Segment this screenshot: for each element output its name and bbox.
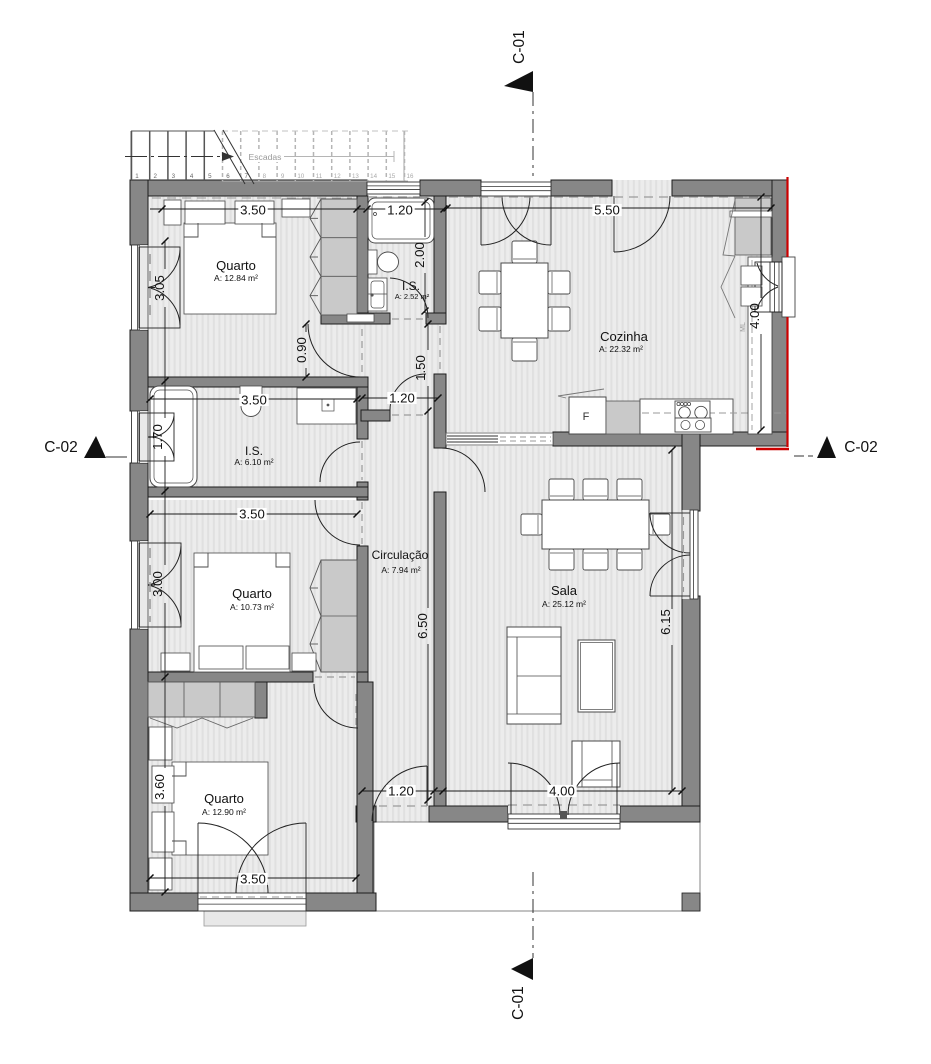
svg-text:4.00: 4.00 — [747, 303, 762, 329]
svg-text:13: 13 — [352, 173, 359, 180]
svg-text:16: 16 — [407, 173, 414, 180]
svg-text:4: 4 — [190, 173, 194, 180]
svg-text:A: 10.73 m²: A: 10.73 m² — [230, 602, 274, 612]
svg-text:10: 10 — [297, 173, 304, 180]
svg-text:Quarto: Quarto — [216, 258, 256, 273]
svg-text:3.00: 3.00 — [150, 571, 165, 597]
svg-text:3.50: 3.50 — [239, 506, 265, 521]
svg-text:Quarto: Quarto — [204, 791, 244, 806]
svg-text:A: 12.90 m²: A: 12.90 m² — [202, 807, 246, 817]
svg-text:15: 15 — [388, 173, 395, 180]
svg-text:14: 14 — [370, 173, 377, 180]
svg-text:Sala: Sala — [551, 583, 578, 598]
svg-text:3.05: 3.05 — [152, 275, 167, 301]
svg-text:I.S.: I.S. — [245, 444, 263, 458]
svg-text:8: 8 — [263, 173, 267, 180]
svg-text:A: 6.10 m²: A: 6.10 m² — [234, 457, 273, 467]
svg-text:1.20: 1.20 — [388, 783, 414, 798]
svg-text:Quarto: Quarto — [232, 586, 272, 601]
svg-text:0.90: 0.90 — [294, 337, 309, 363]
svg-text:A: 7.94 m²: A: 7.94 m² — [381, 565, 420, 575]
svg-text:11: 11 — [316, 173, 323, 180]
svg-text:A: 2.52 m²: A: 2.52 m² — [395, 292, 430, 301]
svg-text:6.15: 6.15 — [658, 609, 673, 635]
svg-text:5: 5 — [208, 173, 212, 180]
svg-text:3.50: 3.50 — [241, 392, 267, 407]
svg-text:3.50: 3.50 — [240, 202, 266, 217]
svg-text:6: 6 — [226, 173, 230, 180]
svg-text:I.S.: I.S. — [402, 279, 420, 293]
svg-text:Escadas: Escadas — [249, 152, 282, 162]
svg-text:A: 12.84 m²: A: 12.84 m² — [214, 273, 258, 283]
svg-text:3: 3 — [172, 173, 176, 180]
svg-text:2.00: 2.00 — [412, 242, 427, 268]
svg-text:1.20: 1.20 — [387, 202, 413, 217]
svg-text:Cozinha: Cozinha — [600, 329, 648, 344]
svg-text:12: 12 — [334, 173, 341, 180]
svg-text:A: 22.32 m²: A: 22.32 m² — [599, 344, 643, 354]
svg-text:1.70: 1.70 — [150, 424, 165, 450]
svg-text:C-02: C-02 — [844, 439, 878, 456]
svg-text:3.50: 3.50 — [240, 871, 266, 886]
svg-text:4.00: 4.00 — [549, 783, 575, 798]
svg-text:9: 9 — [281, 173, 285, 180]
svg-text:2: 2 — [153, 173, 157, 180]
svg-text:C-02: C-02 — [44, 439, 78, 456]
svg-text:Circulação: Circulação — [372, 548, 429, 562]
svg-text:ML: ML — [740, 322, 747, 332]
svg-text:A: 25.12 m²: A: 25.12 m² — [542, 599, 586, 609]
svg-text:1.50: 1.50 — [413, 355, 428, 381]
svg-text:1.20: 1.20 — [389, 390, 415, 405]
svg-text:1: 1 — [135, 173, 139, 180]
svg-text:6.50: 6.50 — [415, 613, 430, 639]
svg-text:5.50: 5.50 — [594, 202, 620, 217]
svg-text:3.60: 3.60 — [152, 774, 167, 800]
svg-text:C-01: C-01 — [510, 986, 527, 1020]
svg-text:C-01: C-01 — [511, 30, 528, 64]
svg-text:F: F — [583, 411, 590, 423]
